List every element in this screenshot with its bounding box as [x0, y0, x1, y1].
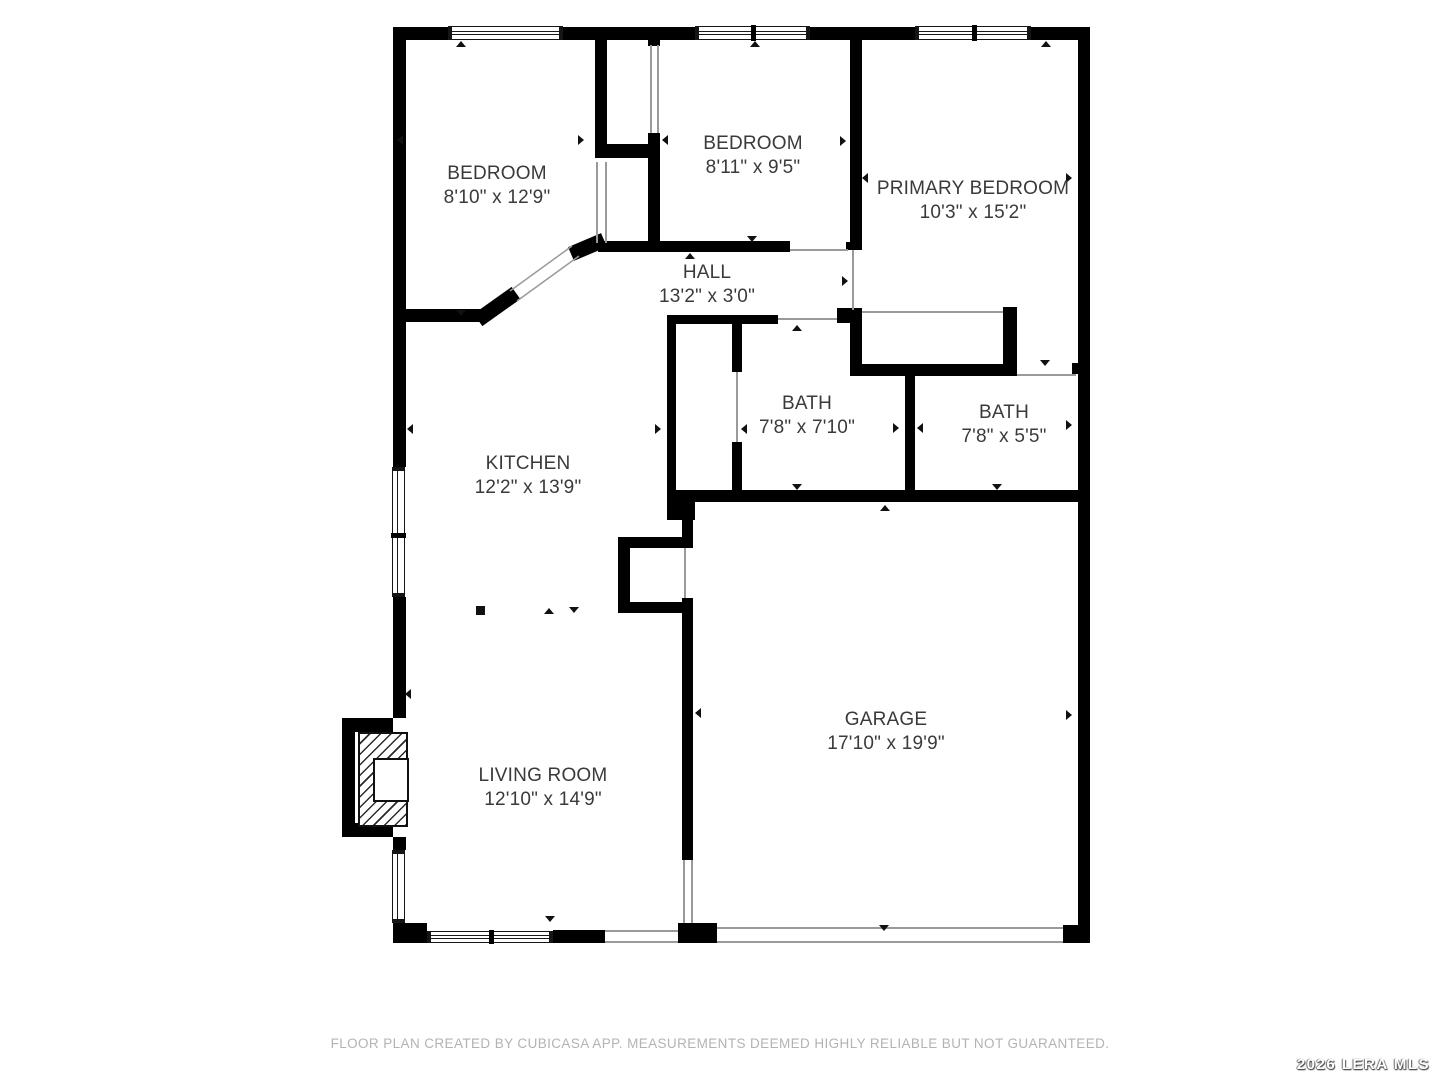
room-dims: 10'3" x 15'2" [877, 201, 1069, 225]
feature-marker [476, 606, 485, 615]
door-opening-line [736, 372, 738, 442]
wall [732, 323, 742, 372]
door-opening-line [852, 250, 854, 310]
wall [850, 364, 1017, 376]
wall [553, 930, 605, 943]
window [392, 467, 405, 597]
door-opening-line [691, 860, 693, 923]
direction-marker [569, 607, 579, 613]
direction-marker [747, 236, 757, 242]
wall [850, 310, 862, 372]
wall [905, 372, 915, 500]
wall [595, 38, 607, 158]
window [915, 26, 1031, 40]
wall [393, 309, 483, 322]
wall [598, 241, 790, 252]
door-opening-line [605, 941, 678, 943]
room-label-bedroom-1: BEDROOM 8'10" x 12'9" [444, 162, 551, 209]
door-opening-line [605, 162, 607, 243]
wall [678, 923, 717, 943]
room-dims: 13'2" x 3'0" [659, 285, 755, 309]
room-name: GARAGE [827, 708, 945, 732]
room-label-garage: GARAGE 17'10" x 19'9" [827, 708, 945, 755]
mls-watermark: 2026 LERA MLS [1297, 1056, 1430, 1073]
window [392, 850, 405, 923]
direction-marker [840, 136, 846, 146]
room-dims: 17'10" x 19'9" [827, 732, 945, 756]
wall [1078, 27, 1090, 943]
garage-door-line [717, 927, 1063, 929]
footer-disclaimer: FLOOR PLAN CREATED BY CUBICASA APP. MEAS… [331, 1036, 1110, 1051]
floor-plan-canvas: BEDROOM 8'10" x 12'9" BEDROOM 8'11" x 9'… [0, 0, 1440, 1080]
door-opening-line [657, 45, 659, 133]
room-name: LIVING ROOM [479, 764, 608, 788]
room-label-bath-1: BATH 7'8" x 7'10" [759, 392, 855, 439]
room-name: BEDROOM [444, 162, 551, 186]
wall [393, 27, 406, 322]
door-opening-line [778, 318, 837, 320]
wall [682, 598, 693, 860]
wall [393, 837, 406, 850]
direction-marker [1040, 360, 1050, 366]
direction-marker [992, 484, 1002, 490]
direction-marker [405, 689, 411, 699]
room-dims: 8'10" x 12'9" [444, 186, 551, 210]
wall [1003, 307, 1017, 376]
direction-marker [741, 424, 747, 434]
direction-marker [1066, 710, 1072, 720]
wall [667, 315, 676, 500]
room-dims: 8'11" x 9'5" [703, 156, 803, 180]
direction-marker [662, 135, 668, 145]
direction-marker [456, 310, 466, 316]
direction-marker [397, 135, 403, 145]
direction-marker [862, 173, 868, 183]
door-opening-line [605, 930, 678, 932]
door-opening-line [683, 860, 685, 923]
room-name: BATH [759, 392, 855, 416]
firebox [373, 758, 409, 802]
room-label-bath-2: BATH 7'8" x 5'5" [961, 401, 1046, 448]
direction-marker [1041, 41, 1051, 47]
direction-marker [685, 253, 695, 259]
wall [732, 442, 742, 492]
room-label-living-room: LIVING ROOM 12'10" x 14'9" [479, 764, 608, 811]
door-opening-line [1017, 374, 1076, 376]
door-opening-line [790, 249, 848, 251]
window [448, 26, 563, 40]
direction-marker [792, 325, 802, 331]
direction-marker [545, 916, 555, 922]
wall [393, 597, 406, 718]
garage-door-line [717, 941, 1063, 943]
wall [682, 500, 693, 548]
wall [667, 490, 1078, 502]
room-dims: 12'2" x 13'9" [475, 476, 582, 500]
wall [850, 38, 862, 250]
direction-marker [750, 41, 760, 47]
door-opening-line [596, 162, 598, 243]
room-name: KITCHEN [475, 452, 582, 476]
window [427, 931, 553, 943]
direction-marker [407, 424, 413, 434]
room-name: BEDROOM [703, 132, 803, 156]
door-opening-line [650, 45, 652, 133]
wall [648, 133, 660, 252]
direction-marker [695, 708, 701, 718]
wall [393, 923, 427, 943]
wall [342, 718, 355, 837]
room-dims: 12'10" x 14'9" [479, 788, 608, 812]
wall [393, 322, 406, 467]
direction-marker [1066, 420, 1072, 430]
wall [846, 242, 862, 250]
door-opening-line [862, 311, 1003, 313]
direction-marker [578, 135, 584, 145]
direction-marker [792, 484, 802, 490]
room-label-bedroom-2: BEDROOM 8'11" x 9'5" [703, 132, 803, 179]
direction-marker [880, 505, 890, 511]
direction-marker [456, 41, 466, 47]
direction-marker [917, 423, 923, 433]
direction-marker [544, 608, 554, 614]
room-label-primary-bedroom: PRIMARY BEDROOM 10'3" x 15'2" [877, 177, 1069, 224]
room-label-hall: HALL 13'2" x 3'0" [659, 261, 755, 308]
room-label-kitchen: KITCHEN 12'2" x 13'9" [475, 452, 582, 499]
wall [618, 602, 693, 613]
window [695, 26, 810, 40]
direction-marker [842, 276, 848, 286]
room-name: BATH [961, 401, 1046, 425]
direction-marker [655, 424, 661, 434]
room-name: PRIMARY BEDROOM [877, 177, 1069, 201]
direction-marker [893, 423, 899, 433]
room-name: HALL [659, 261, 755, 285]
direction-marker [879, 925, 889, 931]
wall [667, 315, 778, 324]
door-opening-line [684, 548, 686, 598]
wall [1072, 363, 1080, 374]
room-dims: 7'8" x 7'10" [759, 416, 855, 440]
room-dims: 7'8" x 5'5" [961, 425, 1046, 449]
